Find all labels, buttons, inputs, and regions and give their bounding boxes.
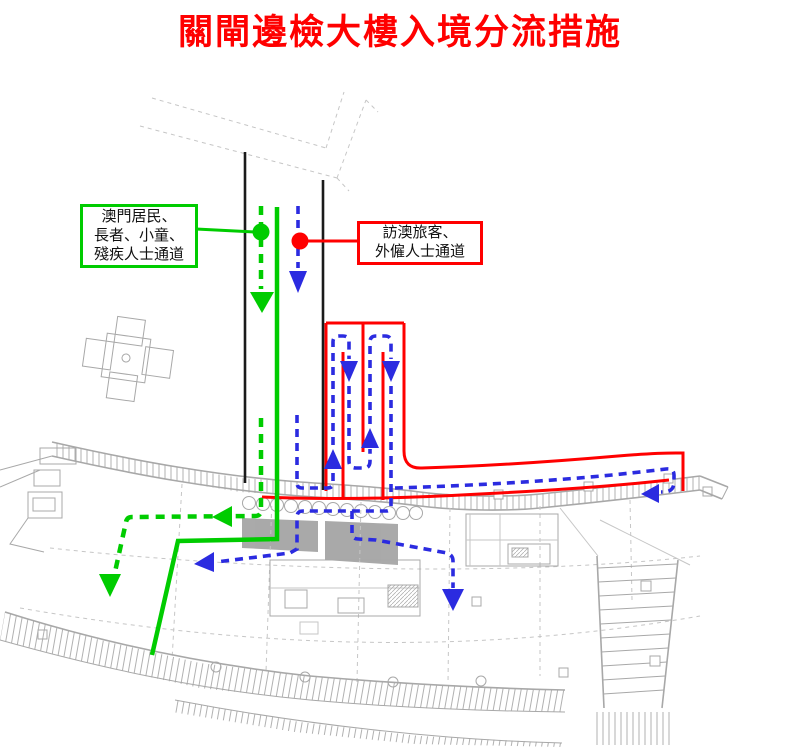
- cross-column-structure: [79, 313, 178, 406]
- visitor-route-blue: [194, 206, 674, 611]
- resident-channel-label: 澳門居民、 長者、小童、 殘疾人士通道: [80, 204, 198, 268]
- north-colonnade-band: [52, 442, 700, 510]
- resident-arrow-left: [212, 506, 232, 527]
- diagram-canvas: 關閘邊檢大樓入境分流措施 澳門居民、 長者、小童、 殘疾人士通道 訪澳旅客、 外…: [0, 0, 800, 747]
- resident-label-line3: 殘疾人士通道: [83, 246, 195, 265]
- visitor-arrow-down-entry: [289, 271, 307, 293]
- visitor-channel-label: 訪澳旅客、 外僱人士通道: [357, 221, 483, 265]
- queue-lane1-to-2: [333, 336, 349, 445]
- queue-wall-5-east-channel-top: [404, 323, 683, 491]
- visitor-label-line1: 訪澳旅客、: [360, 224, 480, 243]
- resident-solid-route: [152, 207, 277, 655]
- east-rooms: [466, 514, 558, 566]
- visitor-label-line2: 外僱人士通道: [360, 243, 480, 262]
- resident-arrow-down-exit: [99, 574, 121, 597]
- visitor-corridor-segment: [297, 415, 333, 488]
- resident-arrow-down-entry: [250, 292, 274, 313]
- resident-route-green: [99, 206, 277, 655]
- southeast-stairs: [560, 508, 690, 745]
- visitor-arrow-down-exit: [442, 589, 464, 611]
- west-blocks: [0, 448, 76, 552]
- visitor-arrow-left-exit: [194, 552, 214, 572]
- north-corridor-walls: [245, 152, 323, 490]
- queue-lane2-to-3: [349, 386, 370, 468]
- resident-channel-dot: [253, 224, 270, 241]
- visitor-arrow-down-lane4: [382, 361, 400, 382]
- queue-lane3-to-4: [370, 336, 391, 424]
- canopy-lines: [140, 92, 378, 191]
- visitor-label-pointer: [292, 233, 360, 250]
- hall-structures: [270, 560, 420, 634]
- resident-label-line2: 長者、小童、: [83, 227, 195, 246]
- page-title: 關閘邊檢大樓入境分流措施: [0, 4, 800, 55]
- east-wing-tip: [700, 476, 728, 499]
- visitor-channel-dot: [292, 233, 309, 250]
- resident-label-line1: 澳門居民、: [83, 208, 195, 227]
- floor-plan-svg: [0, 0, 800, 747]
- resident-hall-route: [115, 418, 261, 572]
